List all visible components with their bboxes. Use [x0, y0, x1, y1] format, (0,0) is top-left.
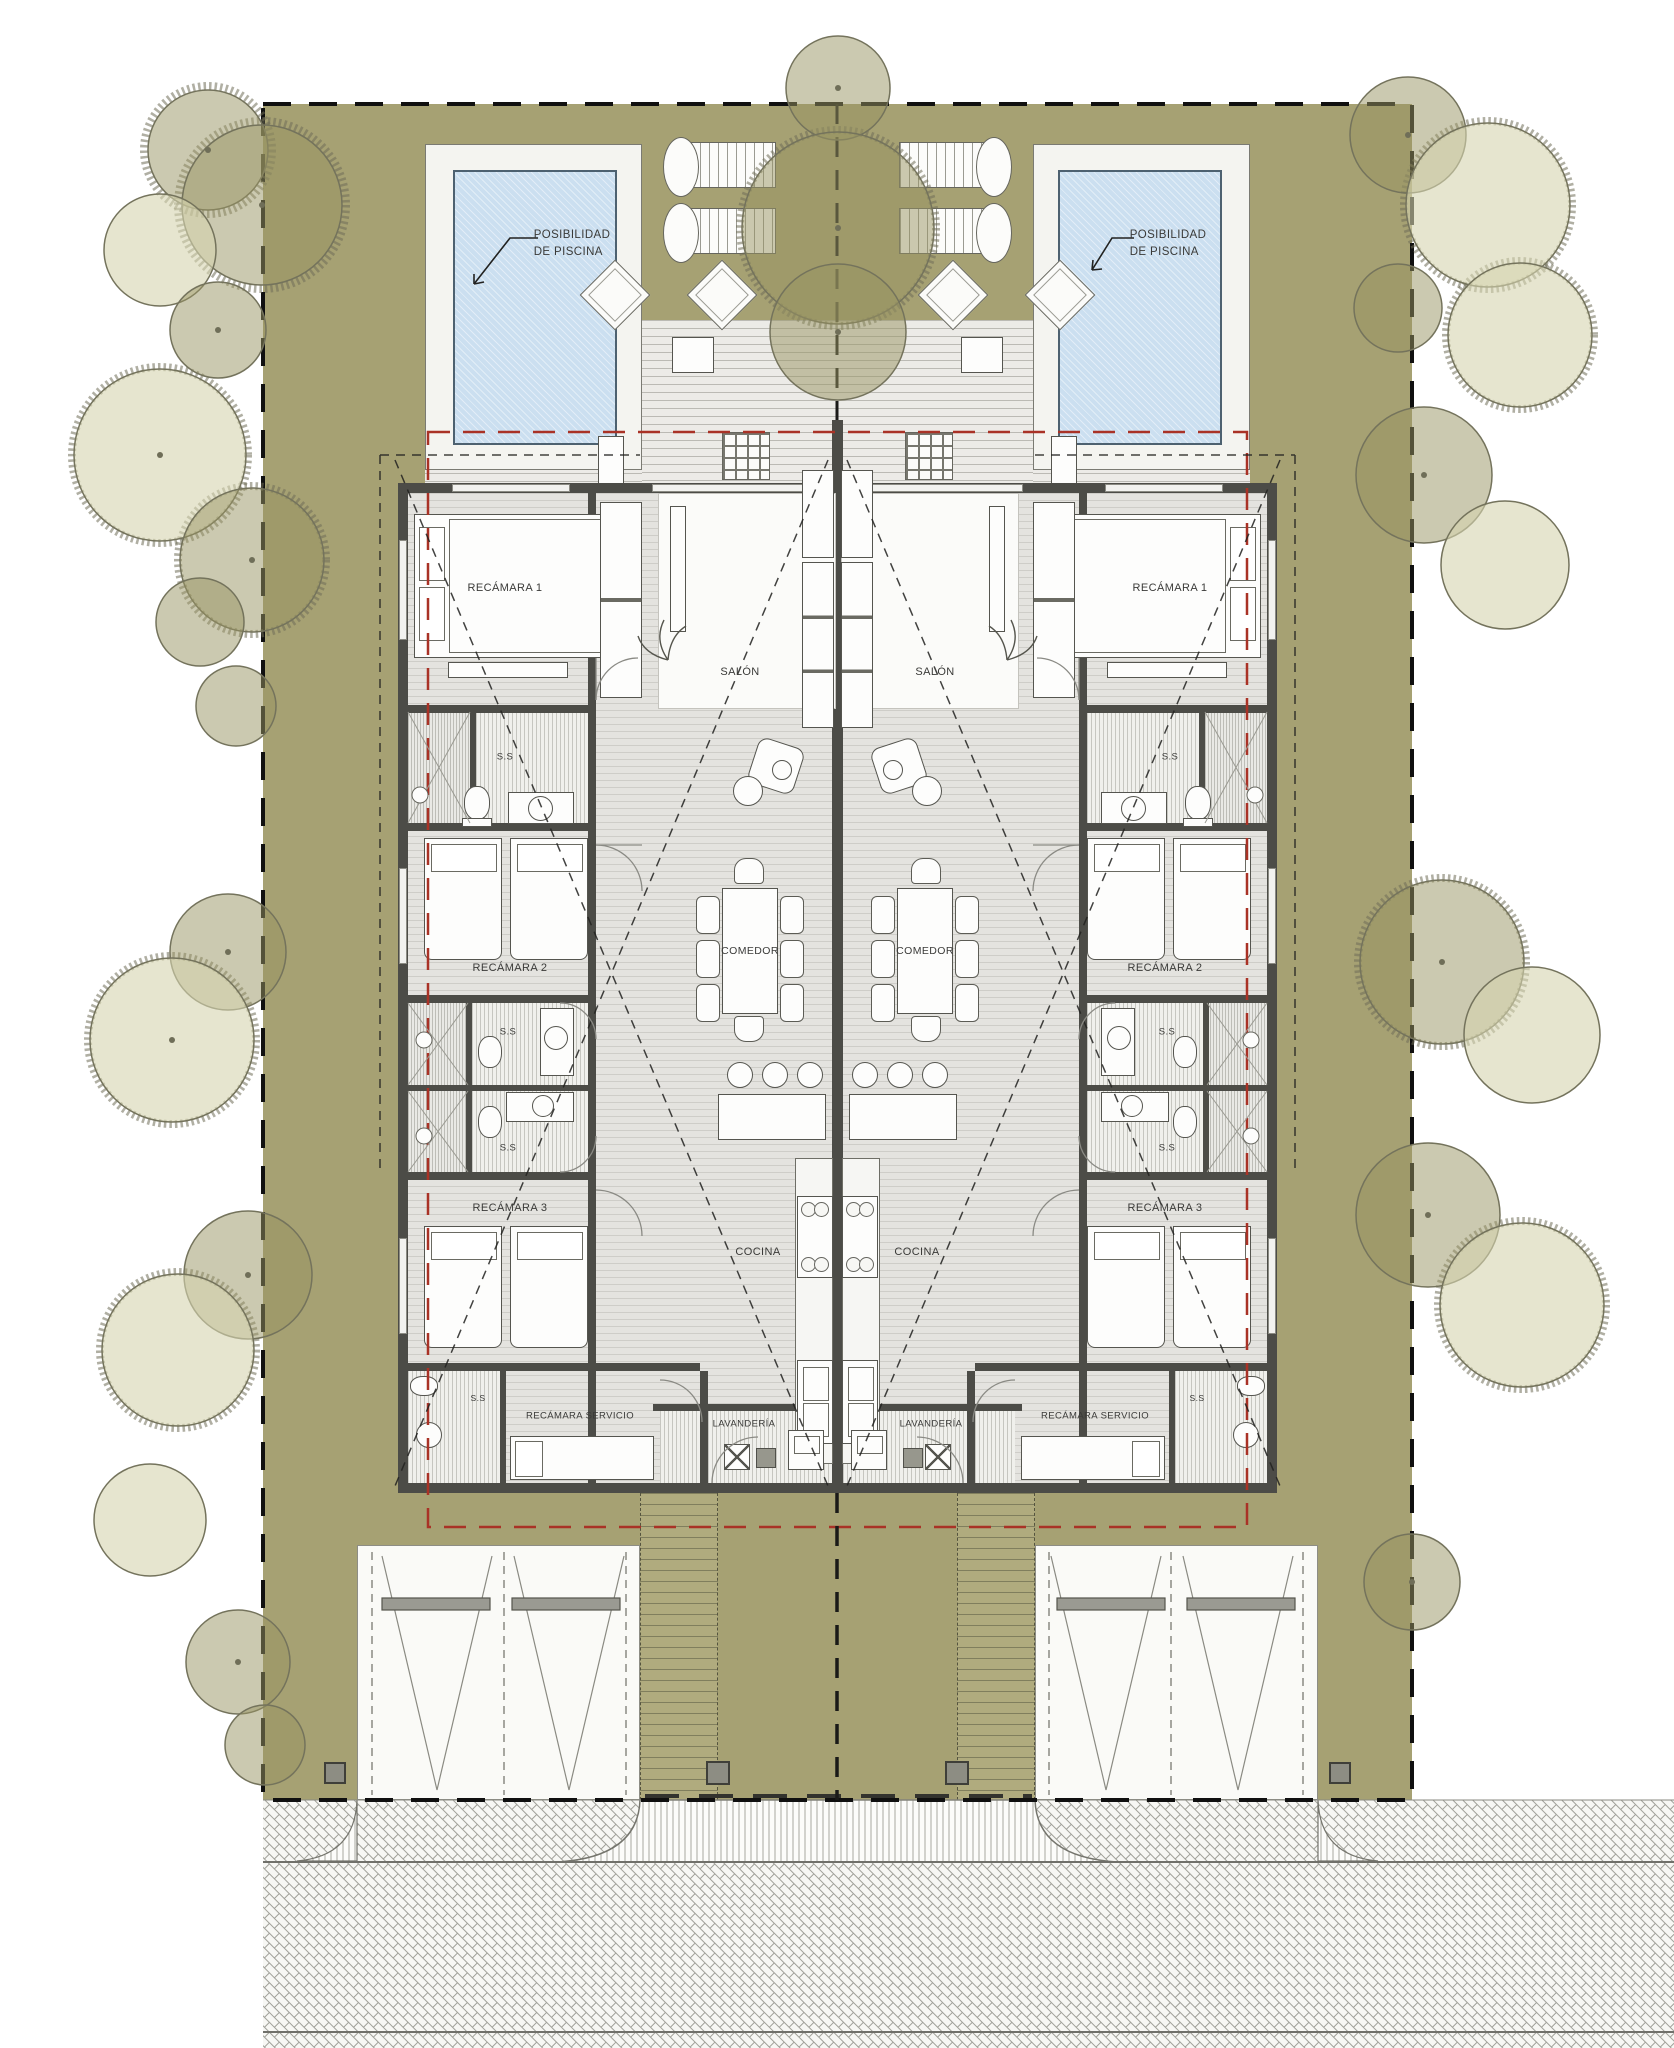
service-bed — [1021, 1436, 1165, 1480]
dining-chair — [871, 940, 895, 978]
room-label: COCINA — [894, 1246, 939, 1258]
wall-int — [700, 1371, 708, 1483]
dining-chair — [871, 896, 895, 934]
bar-stool — [797, 1062, 823, 1088]
wall-int — [1087, 995, 1267, 1003]
deck-table — [961, 337, 1003, 373]
wardrobe — [600, 502, 642, 698]
wall-int — [1203, 1003, 1209, 1172]
room-label: S.S — [500, 1027, 517, 1038]
sink — [544, 1026, 568, 1050]
room-label: SALÓN — [720, 666, 759, 678]
room-label: RECÁMARA 2 — [473, 962, 548, 974]
sink — [1233, 1422, 1259, 1448]
room-label: RECÁMARA 3 — [1128, 1202, 1203, 1214]
sink — [1107, 1026, 1131, 1050]
bed-bench — [1107, 662, 1227, 678]
room-label: RECÁMARA 1 — [1133, 582, 1208, 594]
floor-plan: RECÁMARA 1 RECÁMARA 1 S.S S.S RECÁMARA 2… — [0, 0, 1674, 2048]
room-label: COMEDOR — [896, 945, 954, 957]
wall-int — [408, 823, 588, 831]
wall-int — [408, 995, 588, 1003]
twin-bed — [1087, 1226, 1165, 1348]
bar-stool — [727, 1062, 753, 1088]
window — [452, 484, 570, 492]
sink — [528, 796, 553, 821]
twin-bed — [510, 838, 588, 960]
deck-table — [672, 337, 714, 373]
dining-chair — [734, 858, 764, 884]
wall-int — [466, 1003, 472, 1172]
sink — [532, 1095, 554, 1117]
bar-stool — [762, 1062, 788, 1088]
tv-console — [989, 506, 1005, 632]
sliding-door — [855, 484, 1023, 492]
room-label: COCINA — [735, 1246, 780, 1258]
dining-chair — [734, 1016, 764, 1042]
twin-bed — [1087, 838, 1165, 960]
sun-lounger — [672, 208, 776, 254]
dining-chair — [696, 984, 720, 1022]
sun-lounger — [672, 142, 776, 188]
room-label: S.S — [1162, 752, 1179, 763]
twin-bed — [424, 838, 502, 960]
laundry-sink — [724, 1444, 750, 1470]
toilet — [478, 1036, 502, 1068]
toilet — [1185, 786, 1211, 820]
room-label: LAVANDERÍA — [713, 1419, 776, 1430]
wall-int — [408, 1363, 700, 1371]
wall-int — [408, 1085, 588, 1091]
wall-int — [1169, 1371, 1175, 1483]
stove — [797, 1196, 833, 1278]
toilet — [478, 1106, 502, 1138]
toilet — [1237, 1376, 1265, 1396]
sofa — [802, 562, 834, 728]
wall-int — [408, 1172, 588, 1180]
toilet — [410, 1376, 438, 1396]
room-label: S.S — [497, 752, 514, 763]
dining-chair — [696, 896, 720, 934]
toilet-tank — [1183, 818, 1213, 827]
washer — [788, 1430, 824, 1470]
dining-chair — [871, 984, 895, 1022]
room-label: COMEDOR — [721, 945, 779, 957]
room-label: RECÁMARA SERVICIO — [526, 1411, 634, 1422]
room-label: S.S — [1190, 1393, 1205, 1403]
wall-int — [408, 705, 588, 713]
dining-chair — [911, 858, 941, 884]
dining-chair — [780, 984, 804, 1022]
room-label: S.S — [500, 1143, 517, 1154]
entry-walkway-left — [640, 1493, 718, 1800]
dining-chair — [955, 896, 979, 934]
dining-chair — [911, 1016, 941, 1042]
kitchen-island — [718, 1094, 826, 1140]
bbq-grill — [905, 432, 953, 480]
wall-int — [1087, 1172, 1267, 1180]
sink — [416, 1422, 442, 1448]
tv-console — [670, 506, 686, 632]
room-label: RECÁMARA 2 — [1128, 962, 1203, 974]
room-label: RECÁMARA 3 — [473, 1202, 548, 1214]
dining-chair — [696, 940, 720, 978]
wall-int — [500, 1371, 506, 1483]
window — [1268, 540, 1276, 640]
sofa — [841, 562, 873, 728]
entry-walkway-right — [957, 1493, 1035, 1800]
sink — [1121, 796, 1146, 821]
parking-left — [357, 1545, 640, 1800]
room-label: RECÁMARA SERVICIO — [1041, 1411, 1149, 1422]
shower-left — [408, 712, 470, 823]
daybed — [841, 470, 873, 558]
side-table — [772, 760, 792, 780]
hamper — [903, 1448, 923, 1468]
side-table — [883, 760, 903, 780]
wall-int — [1087, 823, 1267, 831]
toilet-tank — [462, 818, 492, 827]
sun-lounger — [899, 208, 1003, 254]
twin-bed — [510, 1226, 588, 1348]
wall-int — [1087, 1085, 1267, 1091]
deck-bench — [598, 436, 624, 484]
sun-lounger — [899, 142, 1003, 188]
window — [1268, 1238, 1276, 1334]
dining-chair — [780, 896, 804, 934]
room-label: SALÓN — [915, 666, 954, 678]
toilet — [1173, 1106, 1197, 1138]
wall-int — [1087, 705, 1267, 713]
service-bed — [510, 1436, 654, 1480]
bar-stool — [887, 1062, 913, 1088]
side-table — [912, 776, 942, 806]
dining-chair — [955, 984, 979, 1022]
shower-right — [1205, 712, 1267, 823]
twin-bed — [1173, 838, 1251, 960]
room-label: LAVANDERÍA — [900, 1419, 963, 1430]
wall-int — [967, 1371, 975, 1483]
room-label: S.S — [1159, 1143, 1176, 1154]
toilet — [1173, 1036, 1197, 1068]
daybed — [802, 470, 834, 558]
window — [399, 1238, 407, 1334]
room-label: S.S — [471, 1393, 486, 1403]
street — [263, 1800, 1674, 2048]
sliding-door — [652, 484, 820, 492]
pool-annotation-right: POSIBILIDADDE PISCINA — [1130, 227, 1207, 262]
bed-bench — [448, 662, 568, 678]
room-label: S.S — [1159, 1027, 1176, 1038]
laundry-sink — [925, 1444, 951, 1470]
kitchen-island — [849, 1094, 957, 1140]
side-table — [733, 776, 763, 806]
dining-chair — [780, 940, 804, 978]
twin-bed — [1173, 1226, 1251, 1348]
twin-bed — [424, 1226, 502, 1348]
hamper — [756, 1448, 776, 1468]
wardrobe — [1033, 502, 1075, 698]
window — [399, 868, 407, 964]
wall-int — [975, 1363, 1267, 1371]
washer — [851, 1430, 887, 1470]
window — [1105, 484, 1223, 492]
sink — [1121, 1095, 1143, 1117]
room-label: RECÁMARA 1 — [468, 582, 543, 594]
parking-right — [1035, 1545, 1318, 1800]
deck-bench — [1051, 436, 1077, 484]
bar-stool — [922, 1062, 948, 1088]
stove — [842, 1196, 878, 1278]
bbq-grill — [722, 432, 770, 480]
bar-stool — [852, 1062, 878, 1088]
window — [399, 540, 407, 640]
window — [1268, 868, 1276, 964]
dining-chair — [955, 940, 979, 978]
toilet — [464, 786, 490, 820]
pool-annotation-left: POSIBILIDADDE PISCINA — [534, 227, 611, 262]
